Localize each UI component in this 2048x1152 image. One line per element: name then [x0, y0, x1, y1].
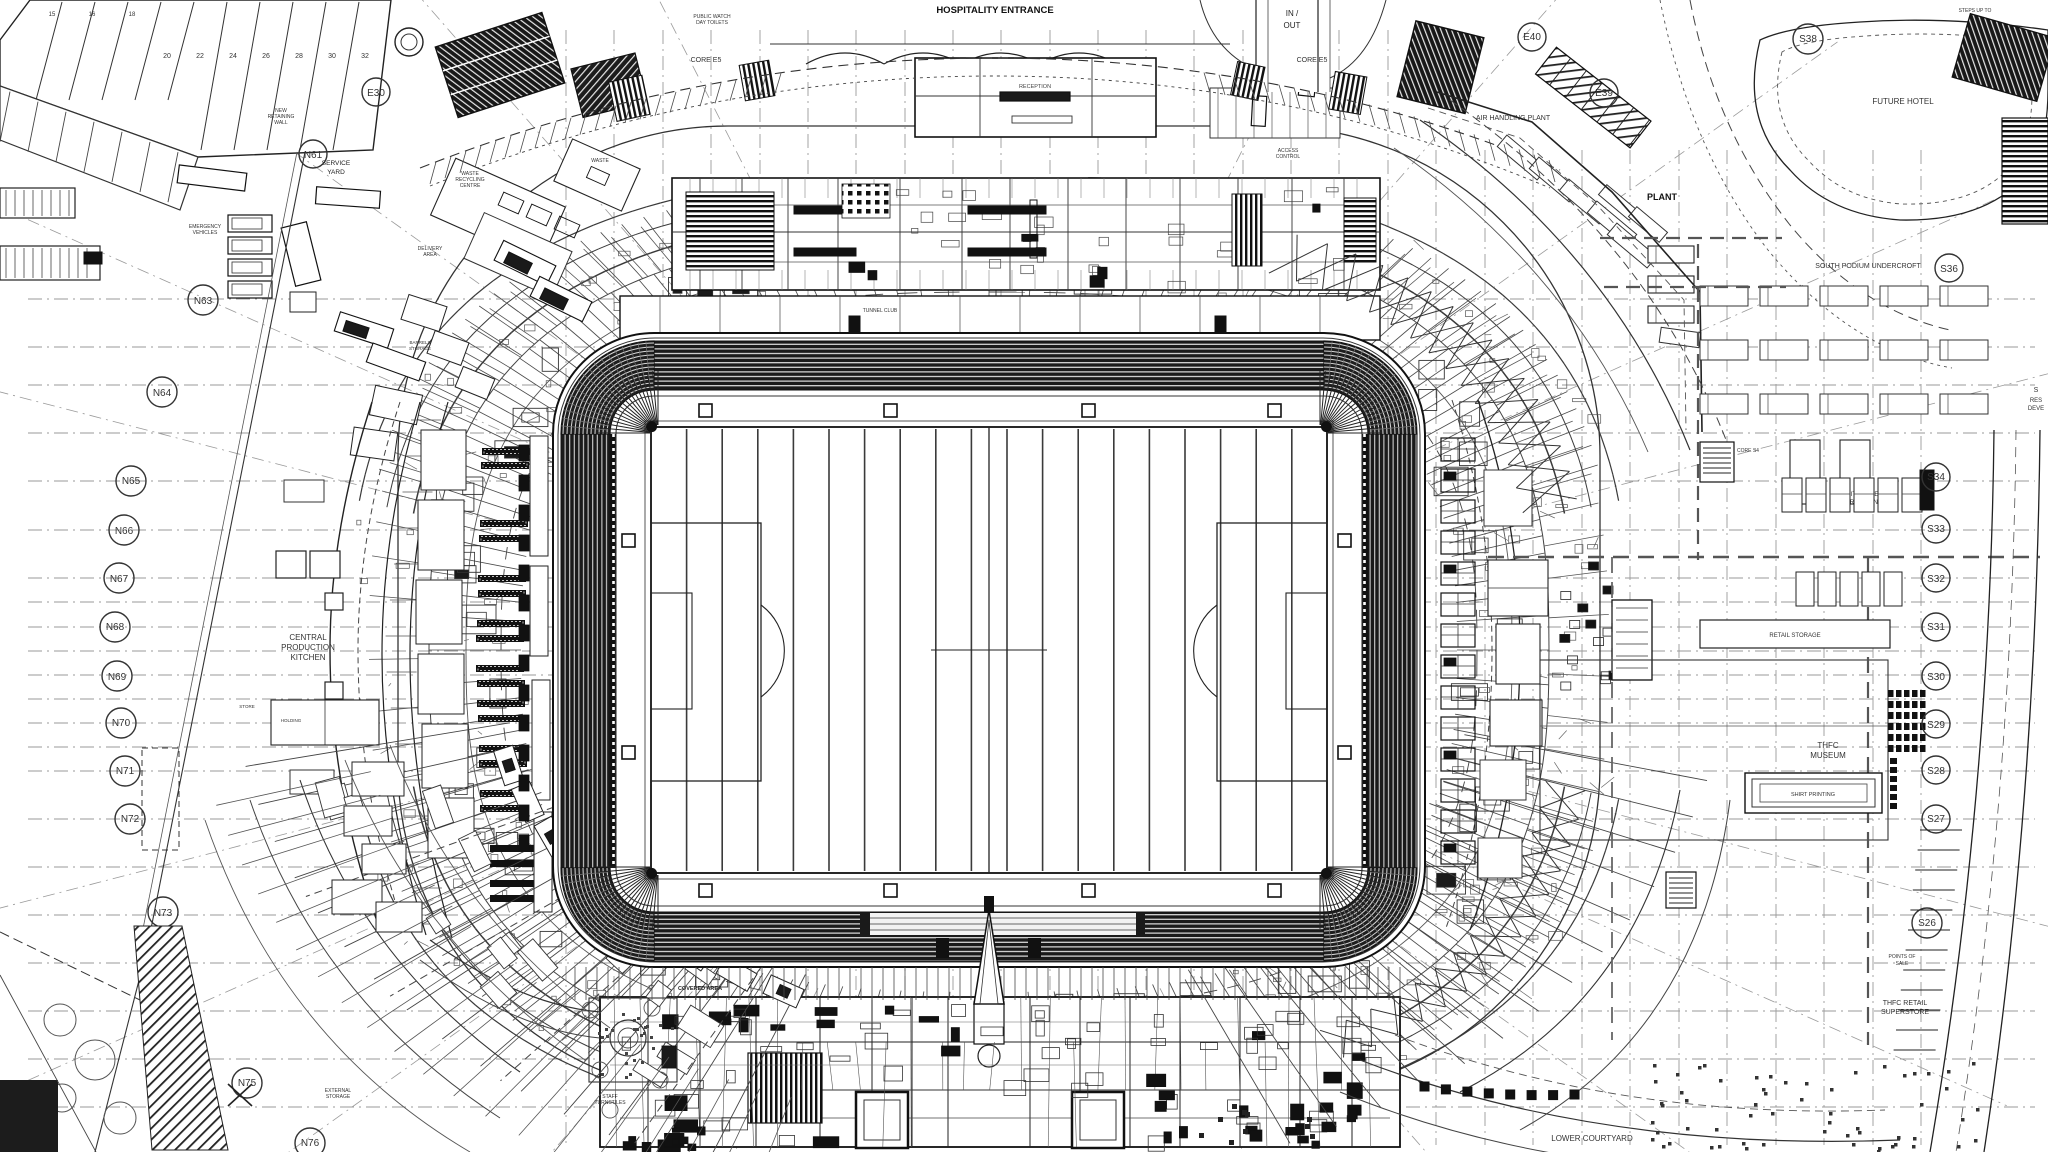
svg-text:HOSPITALITY ENTRANCE: HOSPITALITY ENTRANCE: [936, 5, 1053, 16]
svg-text:STORAGE: STORAGE: [409, 346, 431, 351]
svg-text:N70: N70: [112, 718, 131, 729]
svg-text:CORE E5: CORE E5: [691, 57, 722, 64]
svg-text:20: 20: [163, 53, 171, 60]
svg-text:26: 26: [262, 53, 270, 60]
svg-text:N66: N66: [115, 526, 134, 537]
svg-text:RETAIL STORAGE: RETAIL STORAGE: [1769, 633, 1820, 639]
svg-text:CONTROL: CONTROL: [1276, 154, 1301, 160]
svg-text:WALL: WALL: [274, 120, 288, 126]
svg-text:SERVICE: SERVICE: [322, 160, 351, 167]
svg-text:DEVE: DEVE: [2028, 406, 2044, 412]
svg-text:N65: N65: [122, 476, 141, 487]
svg-text:24: 24: [229, 53, 237, 60]
svg-text:N64: N64: [153, 388, 172, 399]
svg-text:N69: N69: [108, 672, 127, 683]
svg-text:IN /: IN /: [1286, 9, 1299, 18]
svg-text:CENTRE: CENTRE: [460, 183, 481, 189]
svg-text:S36: S36: [1940, 264, 1958, 275]
svg-text:S34: S34: [1927, 472, 1945, 483]
svg-text:PRODUCTION: PRODUCTION: [281, 643, 335, 652]
svg-text:N71: N71: [116, 766, 135, 777]
svg-text:CORE S4: CORE S4: [1737, 448, 1759, 454]
svg-text:BARRELS: BARRELS: [409, 340, 430, 345]
svg-text:S33: S33: [1927, 524, 1945, 535]
svg-text:S28: S28: [1927, 766, 1945, 777]
svg-text:LOWER COURTYARD: LOWER COURTYARD: [1551, 1134, 1633, 1143]
svg-text:E40: E40: [1523, 32, 1541, 43]
svg-text:S30: S30: [1927, 672, 1945, 683]
svg-text:E30: E30: [367, 88, 385, 99]
svg-text:N68: N68: [106, 622, 125, 633]
svg-text:CENTRAL: CENTRAL: [289, 633, 327, 642]
svg-text:STORAGE: STORAGE: [326, 1094, 351, 1100]
svg-text:S27: S27: [1927, 814, 1945, 825]
svg-text:N67: N67: [110, 574, 129, 585]
svg-text:S32: S32: [1927, 574, 1945, 585]
svg-text:S26: S26: [1918, 918, 1936, 929]
svg-text:WASTE: WASTE: [591, 158, 609, 164]
svg-text:HOLDING: HOLDING: [281, 718, 302, 723]
svg-text:S: S: [2034, 387, 2039, 394]
svg-text:TURNSTILES: TURNSTILES: [594, 1100, 626, 1106]
svg-text:S29: S29: [1927, 720, 1945, 731]
svg-text:THFC RETAIL: THFC RETAIL: [1883, 1000, 1928, 1007]
svg-text:N73: N73: [154, 908, 173, 919]
svg-text:FUTURE HOTEL: FUTURE HOTEL: [1872, 97, 1934, 106]
svg-text:30: 30: [328, 53, 336, 60]
svg-text:OUT: OUT: [1284, 21, 1301, 30]
svg-text:22: 22: [196, 53, 204, 60]
svg-text:S31: S31: [1927, 622, 1945, 633]
svg-text:STORE: STORE: [239, 704, 254, 709]
svg-text:SALE: SALE: [1896, 961, 1909, 967]
svg-text:N61: N61: [304, 150, 323, 161]
svg-text:N76: N76: [301, 1138, 320, 1149]
svg-text:KITCHEN: KITCHEN: [290, 653, 325, 662]
svg-text:18: 18: [129, 12, 136, 18]
svg-text:16: 16: [89, 12, 96, 18]
svg-text:AREA: AREA: [423, 252, 437, 258]
svg-text:N72: N72: [121, 814, 140, 825]
svg-text:RECEPTION: RECEPTION: [1019, 84, 1051, 90]
svg-text:SHIRT PRINTING: SHIRT PRINTING: [1791, 792, 1835, 798]
svg-text:RES: RES: [2030, 398, 2042, 404]
svg-text:N63: N63: [194, 296, 213, 307]
svg-text:DAY TOILETS: DAY TOILETS: [696, 20, 729, 26]
svg-text:32: 32: [361, 53, 369, 60]
svg-text:TUNNEL CLUB: TUNNEL CLUB: [863, 308, 898, 314]
svg-text:15: 15: [49, 12, 56, 18]
svg-text:THFC: THFC: [1817, 741, 1839, 750]
svg-text:PLANT: PLANT: [1647, 192, 1677, 202]
svg-text:POINTS OF: POINTS OF: [1889, 954, 1916, 960]
svg-text:STEPS UP TO: STEPS UP TO: [1959, 8, 1992, 14]
svg-text:YARD: YARD: [327, 169, 345, 176]
svg-text:S38: S38: [1799, 34, 1817, 45]
svg-text:MUSEUM: MUSEUM: [1810, 751, 1846, 760]
svg-text:SOUTH PODIUM UNDERCROFT: SOUTH PODIUM UNDERCROFT: [1815, 263, 1921, 270]
svg-text:CORE E5: CORE E5: [1297, 57, 1328, 64]
svg-text:28: 28: [295, 53, 303, 60]
svg-text:VEHICLES: VEHICLES: [193, 230, 218, 236]
svg-text:E39: E39: [1595, 88, 1613, 99]
